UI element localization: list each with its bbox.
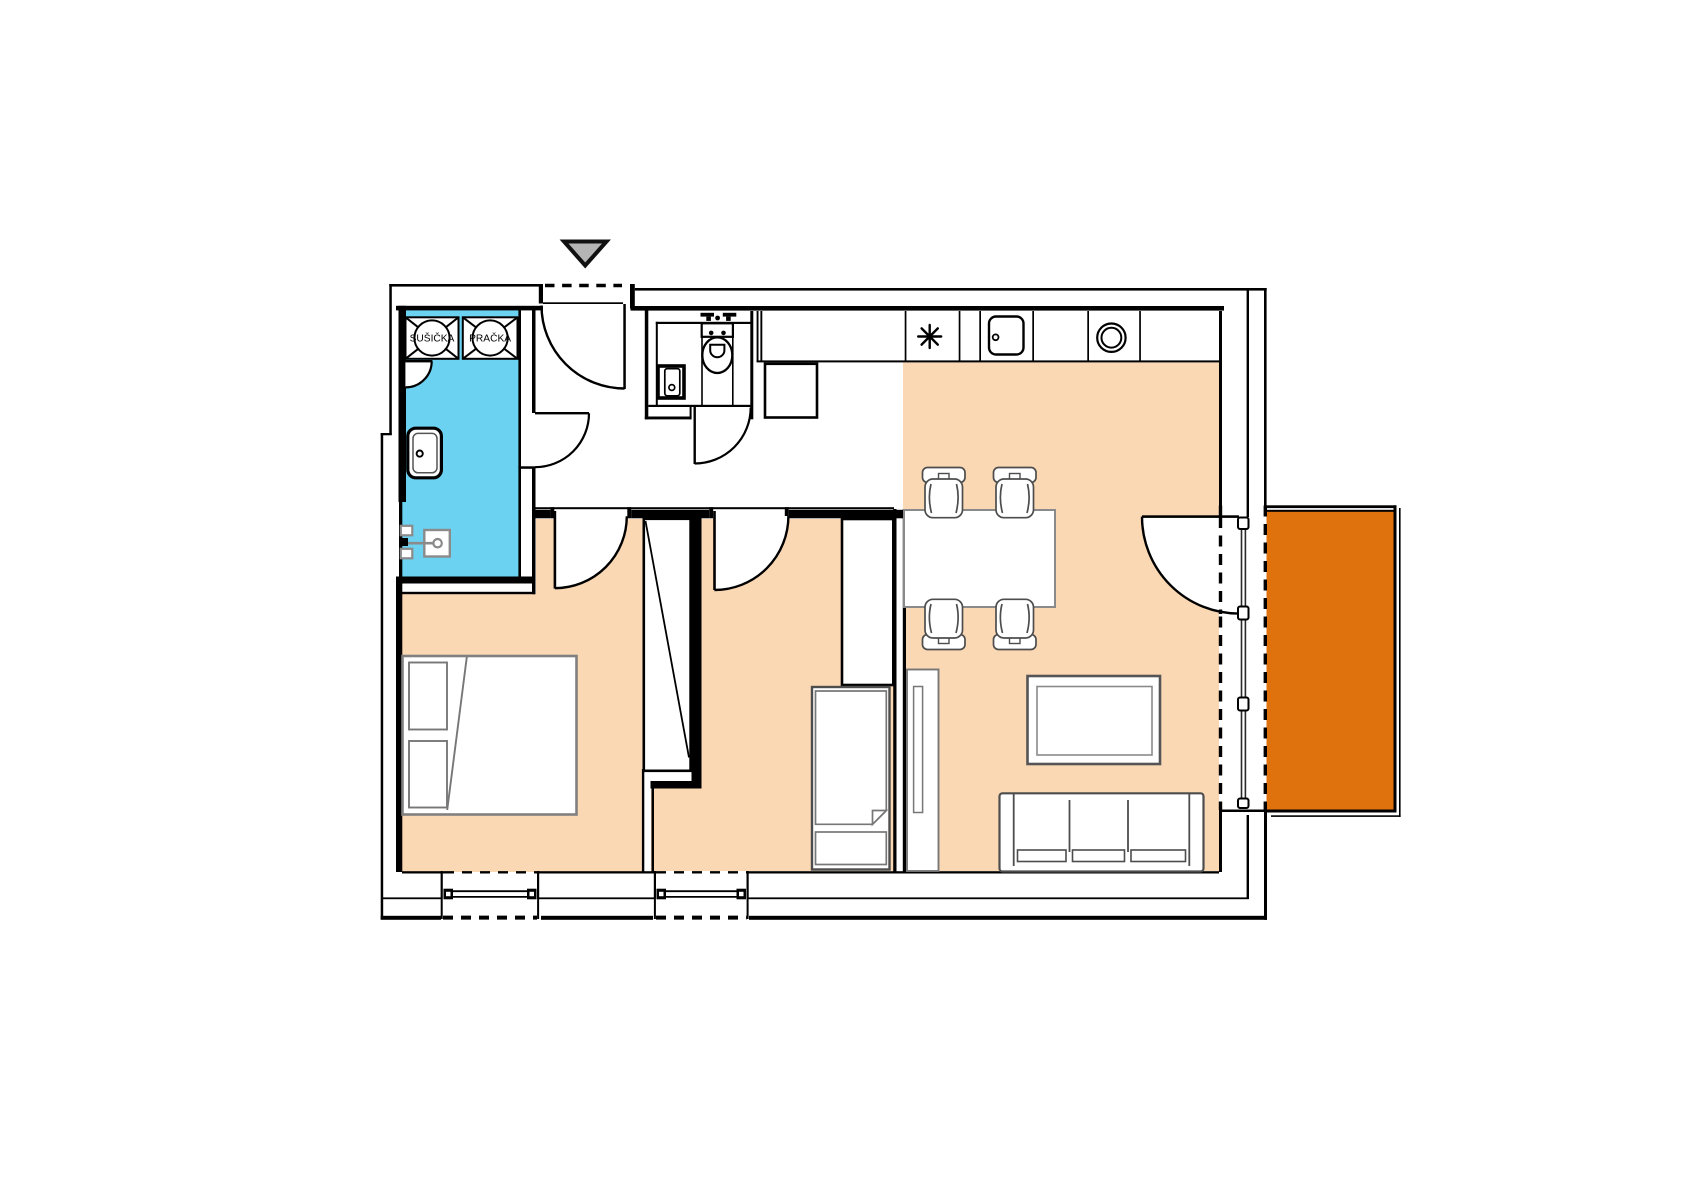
- svg-text:PRAČKA: PRAČKA: [469, 332, 511, 345]
- svg-text:SUŠIČKA: SUŠIČKA: [410, 332, 455, 345]
